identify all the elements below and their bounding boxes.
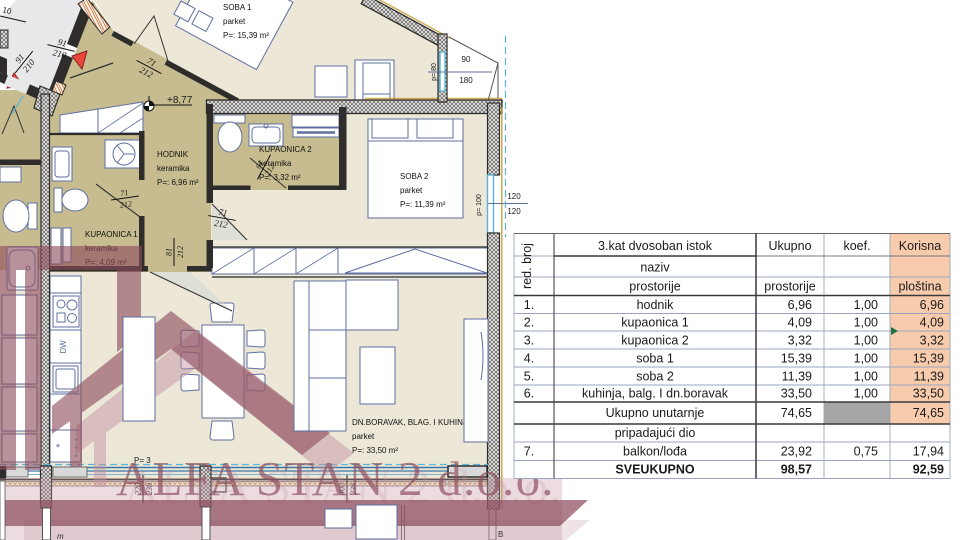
svg-text:1,00: 1,00 bbox=[854, 370, 878, 384]
svg-text:red. broj: red. broj bbox=[520, 243, 534, 289]
svg-text:3,32: 3,32 bbox=[788, 334, 812, 348]
svg-text:p= 80: p= 80 bbox=[431, 63, 438, 81]
svg-text:1,00: 1,00 bbox=[854, 298, 878, 312]
svg-text:1,00: 1,00 bbox=[854, 334, 878, 348]
svg-text:3.: 3. bbox=[524, 334, 534, 348]
svg-text:kuhinja, balg. I dn.boravak: kuhinja, balg. I dn.boravak bbox=[582, 387, 729, 401]
svg-text:71: 71 bbox=[120, 188, 129, 198]
svg-text:kupaonica 2: kupaonica 2 bbox=[621, 334, 688, 348]
svg-text:koef.: koef. bbox=[843, 239, 870, 253]
svg-text:11,39: 11,39 bbox=[914, 370, 944, 384]
svg-text:212: 212 bbox=[176, 246, 185, 258]
svg-text:74,65: 74,65 bbox=[781, 406, 812, 420]
svg-text:P=: 6,96 m²: P=: 6,96 m² bbox=[157, 178, 199, 187]
svg-text:P=: 15,39 m²: P=: 15,39 m² bbox=[223, 31, 269, 40]
svg-text:15,39: 15,39 bbox=[913, 352, 944, 366]
svg-text:180: 180 bbox=[459, 76, 473, 85]
svg-text:DN.BORAVAK, BLAG. I KUHINJA: DN.BORAVAK, BLAG. I KUHINJA bbox=[352, 418, 473, 427]
svg-text:HODNIK: HODNIK bbox=[157, 150, 189, 159]
svg-text:11,39: 11,39 bbox=[782, 370, 812, 384]
svg-text:pripadajući dio: pripadajući dio bbox=[615, 426, 696, 440]
svg-text:B: B bbox=[498, 530, 503, 539]
svg-text:soba 1: soba 1 bbox=[636, 352, 674, 366]
svg-text:7.: 7. bbox=[524, 445, 534, 459]
svg-text:23,92: 23,92 bbox=[781, 445, 812, 459]
svg-text:prostorije: prostorije bbox=[629, 280, 680, 294]
svg-text:4.: 4. bbox=[524, 352, 534, 366]
svg-text:33,50: 33,50 bbox=[781, 387, 812, 401]
svg-text:KUPAONICA 2: KUPAONICA 2 bbox=[259, 145, 312, 154]
svg-text:parket: parket bbox=[352, 432, 375, 441]
svg-text:soba 2: soba 2 bbox=[636, 370, 674, 384]
svg-text:0,75: 0,75 bbox=[854, 445, 878, 459]
svg-text:SOBA 1: SOBA 1 bbox=[223, 3, 252, 12]
svg-text:Korisna: Korisna bbox=[899, 239, 941, 253]
svg-text:+8,77: +8,77 bbox=[167, 95, 193, 106]
svg-text:kupaonica 1: kupaonica 1 bbox=[621, 316, 688, 330]
svg-text:6.: 6. bbox=[524, 387, 534, 401]
svg-text:balkon/lođa: balkon/lođa bbox=[623, 445, 687, 459]
svg-text:6,96: 6,96 bbox=[788, 298, 812, 312]
svg-text:parket: parket bbox=[223, 17, 246, 26]
svg-text:3,32: 3,32 bbox=[920, 334, 944, 348]
svg-text:hodnik: hodnik bbox=[637, 298, 675, 312]
svg-text:keramika: keramika bbox=[259, 159, 292, 168]
svg-text:15,39: 15,39 bbox=[781, 352, 812, 366]
svg-text:4,09: 4,09 bbox=[788, 316, 812, 330]
svg-text:71: 71 bbox=[218, 207, 229, 218]
svg-text:6,96: 6,96 bbox=[920, 298, 944, 312]
svg-text:P=: 3,32 m²: P=: 3,32 m² bbox=[259, 173, 301, 182]
svg-text:p= 100: p= 100 bbox=[476, 194, 483, 216]
svg-text:5.: 5. bbox=[524, 370, 534, 384]
svg-text:1,00: 1,00 bbox=[854, 316, 878, 330]
svg-text:Ukupno: Ukupno bbox=[768, 239, 811, 253]
svg-text:1,00: 1,00 bbox=[854, 352, 878, 366]
svg-text:98,57: 98,57 bbox=[781, 463, 812, 477]
svg-text:keramika: keramika bbox=[157, 164, 190, 173]
svg-text:DW: DW bbox=[59, 340, 68, 354]
svg-text:naziv: naziv bbox=[640, 261, 670, 275]
svg-text:SVEUKUPNO: SVEUKUPNO bbox=[615, 463, 694, 477]
svg-text:120: 120 bbox=[507, 192, 521, 201]
svg-text:81: 81 bbox=[165, 248, 174, 256]
svg-text:Ukupno unutarnje: Ukupno unutarnje bbox=[606, 406, 705, 420]
svg-text:120: 120 bbox=[507, 207, 521, 216]
svg-text:1.: 1. bbox=[524, 298, 534, 312]
svg-text:m: m bbox=[57, 532, 64, 540]
svg-text:90: 90 bbox=[462, 55, 471, 64]
svg-text:ALFA STAN 2 d.o.o.: ALFA STAN 2 d.o.o. bbox=[116, 451, 555, 506]
svg-text:*: * bbox=[56, 442, 61, 454]
svg-text:P=: 11,39 m²: P=: 11,39 m² bbox=[400, 200, 446, 209]
svg-text:4,09: 4,09 bbox=[920, 316, 944, 330]
svg-text:33,50: 33,50 bbox=[913, 387, 944, 401]
svg-text:17,94: 17,94 bbox=[913, 445, 944, 459]
svg-text:1,00: 1,00 bbox=[854, 387, 878, 401]
svg-text:SOBA 2: SOBA 2 bbox=[400, 172, 429, 181]
svg-text:212: 212 bbox=[119, 199, 132, 210]
svg-text:prostorije: prostorije bbox=[764, 280, 815, 294]
svg-text:2.: 2. bbox=[524, 316, 534, 330]
svg-text:parket: parket bbox=[400, 186, 423, 195]
svg-text:92,59: 92,59 bbox=[913, 463, 944, 477]
svg-text:74,65: 74,65 bbox=[913, 406, 944, 420]
svg-text:3.kat dvosoban istok: 3.kat dvosoban istok bbox=[598, 239, 713, 253]
svg-text:ploština: ploština bbox=[898, 280, 941, 294]
svg-text:KUPAONICA 1: KUPAONICA 1 bbox=[85, 230, 138, 239]
